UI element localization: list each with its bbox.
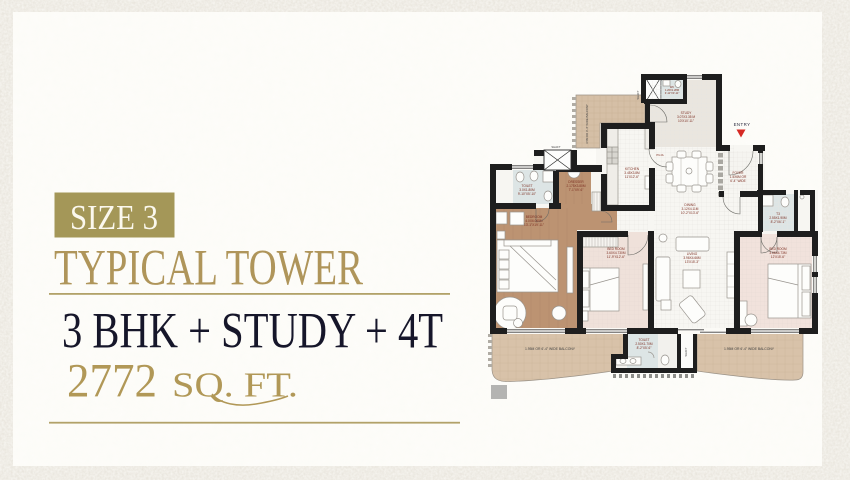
svg-text:SIZE 3: SIZE 3 [70, 198, 158, 237]
svg-text:PUJA: PUJA [656, 153, 663, 157]
svg-text:SHAFT: SHAFT [636, 90, 640, 99]
svg-text:7'-1"X9'-6": 7'-1"X9'-6" [569, 188, 584, 192]
svg-text:SHAFT: SHAFT [551, 145, 560, 149]
svg-text:10'X10'-11": 10'X10'-11" [678, 119, 694, 123]
svg-text:9'-10"X5'-10": 9'-10"X5'-10" [518, 192, 536, 196]
svg-text:11'X12'-6": 11'X12'-6" [625, 175, 639, 179]
svg-text:12'X15'-6": 12'X15'-6" [771, 255, 785, 259]
svg-text:3.5M OR 6'-4" WIDE BALCONY: 3.5M OR 6'-4" WIDE BALCONY [585, 104, 589, 144]
svg-text:11'-9"X12'-6": 11'-9"X12'-6" [607, 255, 625, 259]
svg-text:10'-2"X13'-6": 10'-2"X13'-6" [681, 211, 699, 215]
svg-text:3'-11"X3'-11": 3'-11"X3'-11" [665, 91, 680, 95]
svg-text:13'-1"X19'-11": 13'-1"X19'-11" [524, 223, 544, 227]
svg-text:TYPICAL TOWER: TYPICAL TOWER [54, 241, 363, 297]
svg-text:13'X15'-3": 13'X15'-3" [685, 260, 699, 264]
svg-text:6'-4" WIDE: 6'-4" WIDE [730, 179, 746, 183]
svg-text:8'-2"X5'-6": 8'-2"X5'-6" [637, 346, 652, 350]
svg-text:1.95M OR 6'-4" WIDE BALCONY: 1.95M OR 6'-4" WIDE BALCONY [724, 347, 775, 351]
svg-text:3 BHK + STUDY + 4T: 3 BHK + STUDY + 4T [62, 304, 443, 360]
svg-text:2772: 2772 [67, 355, 157, 408]
svg-text:ENTRY: ENTRY [734, 122, 751, 127]
svg-text:SHAFT: SHAFT [684, 347, 688, 356]
svg-text:1.95M OR 6'-4" WIDE BALCONY: 1.95M OR 6'-4" WIDE BALCONY [525, 347, 576, 351]
svg-text:8'-2"X6'-1": 8'-2"X6'-1" [771, 220, 786, 224]
